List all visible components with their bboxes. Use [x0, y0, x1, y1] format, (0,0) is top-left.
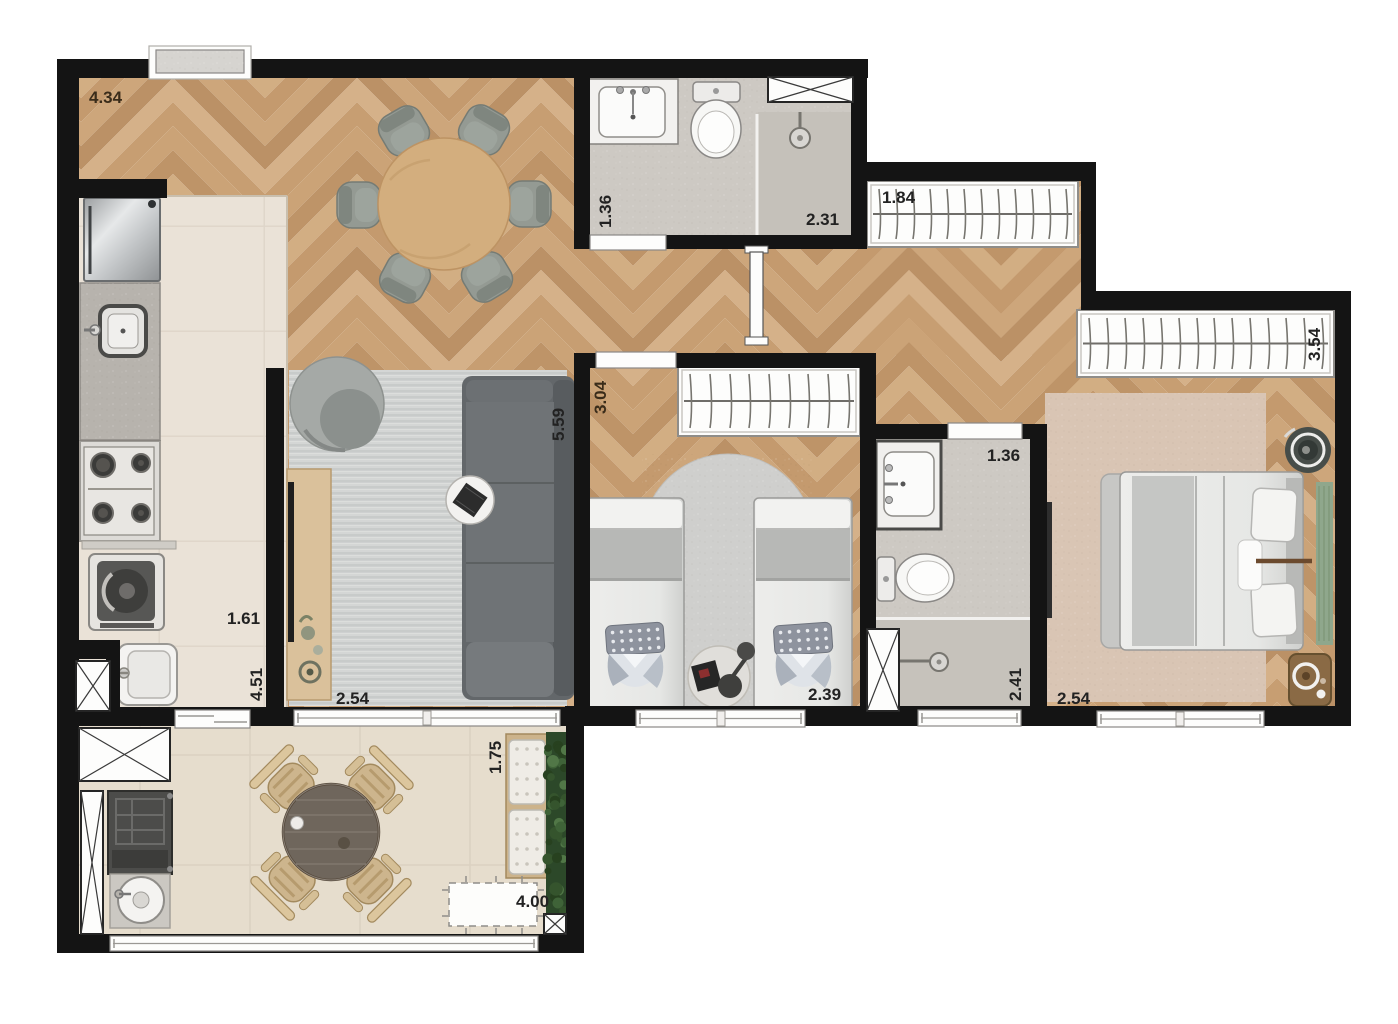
svg-text:2.41: 2.41	[1006, 668, 1025, 701]
svg-text:3.04: 3.04	[591, 380, 610, 414]
svg-text:1.36: 1.36	[596, 195, 615, 228]
svg-text:1.75: 1.75	[486, 741, 505, 774]
svg-text:2.54: 2.54	[1057, 689, 1091, 708]
svg-text:1.61: 1.61	[227, 609, 260, 628]
svg-text:5.59: 5.59	[549, 408, 568, 441]
svg-text:4.34: 4.34	[89, 88, 123, 107]
svg-text:4.00: 4.00	[516, 892, 549, 911]
svg-text:2.39: 2.39	[808, 685, 841, 704]
svg-text:1.36: 1.36	[987, 446, 1020, 465]
svg-text:3.54: 3.54	[1305, 327, 1324, 361]
svg-text:2.54: 2.54	[336, 689, 370, 708]
svg-text:1.84: 1.84	[882, 188, 916, 207]
svg-text:4.51: 4.51	[247, 668, 266, 701]
svg-text:2.31: 2.31	[806, 210, 839, 229]
